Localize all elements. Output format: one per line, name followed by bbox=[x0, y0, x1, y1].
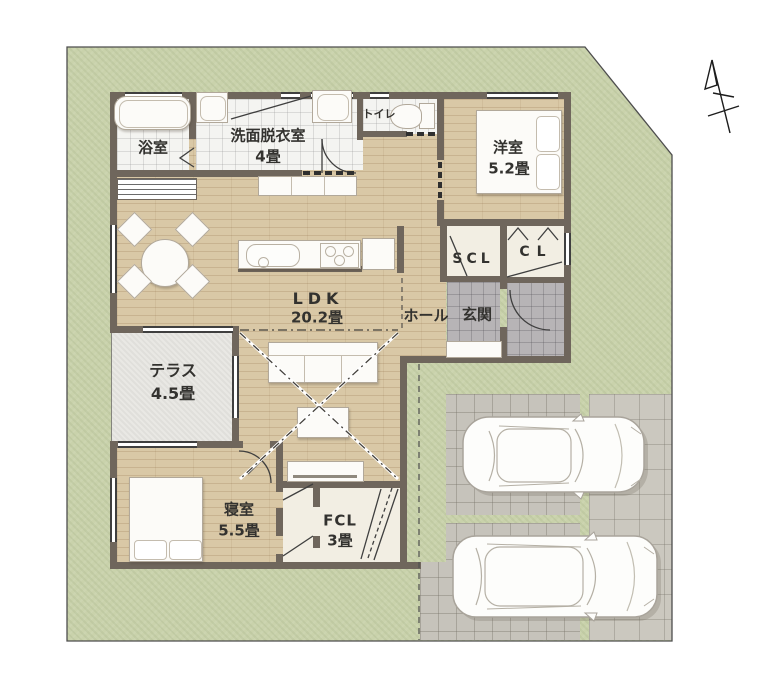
stove-burner bbox=[325, 246, 336, 257]
room-area-ldk: 20.2畳 bbox=[291, 311, 343, 326]
cupboard-divider bbox=[291, 177, 292, 195]
wall-frontdoor-a bbox=[500, 226, 507, 289]
wall-yoshitsu-south bbox=[437, 219, 571, 226]
window-yoshitsu-north bbox=[487, 92, 558, 99]
room-label-washroom: 洗面脱衣室 bbox=[230, 129, 305, 144]
approach-grass bbox=[407, 363, 446, 562]
wall-fcl-inner-b bbox=[313, 536, 320, 548]
sofa-seat-line bbox=[341, 355, 342, 382]
refrigerator bbox=[362, 238, 395, 270]
wall-toilet-south bbox=[357, 131, 407, 137]
floor-plan-canvas: 浴室 洗面脱衣室 4畳 トイレ 洋室 5.2畳 SCL CL ホール 玄関 LD… bbox=[0, 0, 780, 688]
room-area-washroom: 4畳 bbox=[255, 150, 280, 165]
tv-screen bbox=[293, 475, 357, 478]
room-label-scl: SCL bbox=[452, 252, 493, 266]
wall-east-upper bbox=[564, 92, 571, 363]
bed-pillow bbox=[536, 116, 560, 152]
window-bedroom-west bbox=[110, 478, 117, 542]
window-ldk-terrace bbox=[143, 326, 233, 333]
kitchen-sink bbox=[246, 244, 300, 267]
wall-bedroom-fcl-c bbox=[276, 554, 283, 562]
wall-kitchen-east bbox=[397, 226, 404, 273]
wall-cl-south bbox=[505, 277, 567, 283]
room-label-western-room: 洋室 bbox=[493, 141, 523, 156]
louver-deck bbox=[117, 178, 197, 200]
washing-machine-drum bbox=[200, 96, 226, 121]
wall-bedroom-fcl-b bbox=[276, 508, 283, 536]
bed-pillow bbox=[169, 540, 202, 560]
room-label-hall: ホール bbox=[403, 309, 448, 324]
room-label-terrace: テラス bbox=[149, 363, 197, 379]
cupboard-divider bbox=[324, 177, 325, 195]
sofa bbox=[268, 342, 378, 383]
coffee-table bbox=[297, 407, 349, 438]
wall-scl-south bbox=[440, 276, 500, 282]
window-toilet-north bbox=[370, 92, 389, 99]
parking-side-paving bbox=[589, 394, 672, 640]
room-label-ldk: LDK bbox=[293, 291, 344, 307]
wash-basin-bowl bbox=[317, 94, 349, 121]
room-area-bedroom: 5.5畳 bbox=[218, 524, 260, 539]
room-label-cl: CL bbox=[519, 245, 552, 259]
sofa-back-line bbox=[269, 355, 377, 356]
bed-pillow bbox=[134, 540, 167, 560]
stove-burner bbox=[334, 255, 345, 266]
window-washer-north bbox=[281, 92, 300, 99]
north-arrow-icon bbox=[705, 60, 739, 133]
window-terrace-east bbox=[232, 356, 239, 418]
tv-board bbox=[287, 461, 364, 482]
room-label-bathroom: 浴室 bbox=[138, 141, 168, 156]
wall-west-upper bbox=[110, 92, 117, 333]
bed-pillow bbox=[536, 154, 560, 190]
room-area-terrace: 4.5畳 bbox=[151, 386, 195, 402]
bathtub-inner bbox=[119, 100, 188, 128]
window-dining-west bbox=[110, 225, 117, 293]
room-area-fcl: 3畳 bbox=[327, 534, 352, 549]
wall-yoshitsu-west-a bbox=[437, 92, 444, 160]
room-label-bedroom: 寝室 bbox=[224, 503, 254, 518]
wall-bedroom-door-stub bbox=[270, 441, 283, 448]
entrance-step bbox=[446, 341, 502, 358]
window-bedroom-north bbox=[118, 441, 197, 448]
room-area-western-room: 5.2畳 bbox=[488, 162, 530, 177]
room-label-toilet: トイレ bbox=[363, 109, 396, 120]
entrance-porch-tile bbox=[507, 282, 567, 356]
wall-south bbox=[110, 562, 421, 569]
room-label-entrance: 玄関 bbox=[462, 308, 492, 323]
wall-scl-west bbox=[440, 226, 447, 282]
window-porch-east bbox=[564, 233, 571, 265]
stove-burner bbox=[343, 246, 354, 257]
sofa-seat-line bbox=[304, 355, 305, 382]
room-label-fcl: FCL bbox=[323, 514, 357, 529]
kitchen-cupboard bbox=[258, 176, 357, 196]
wall-east-lower bbox=[400, 356, 407, 569]
wall-fcl-inner-a bbox=[313, 483, 320, 507]
kitchen-faucet bbox=[258, 257, 269, 268]
wall-fcl-north bbox=[276, 481, 407, 488]
